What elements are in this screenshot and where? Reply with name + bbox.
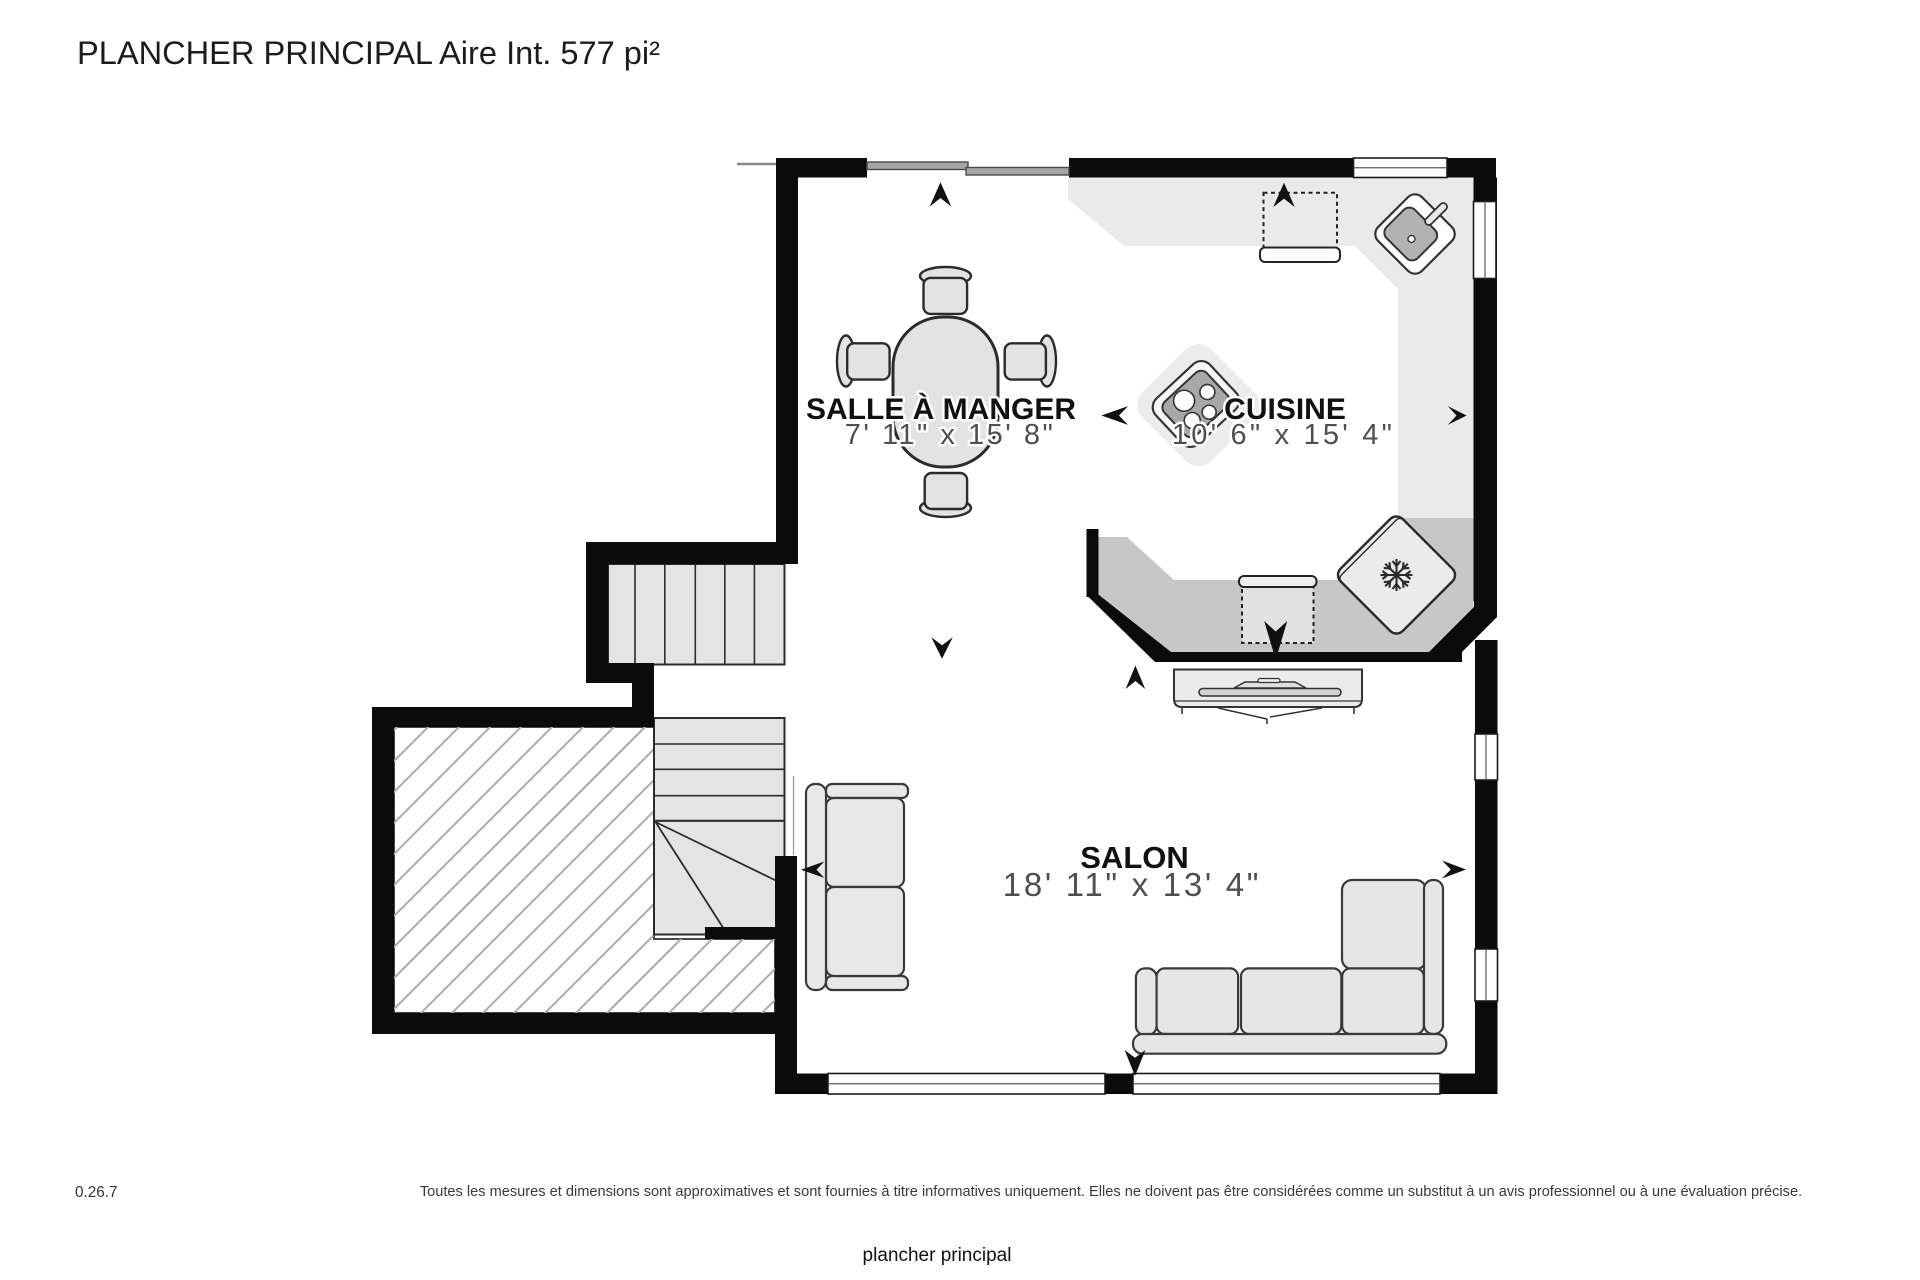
svg-text:10' 6" x 15' 4": 10' 6" x 15' 4" xyxy=(1172,419,1395,451)
svg-text:7' 11" x 15' 8": 7' 11" x 15' 8" xyxy=(845,419,1056,451)
svg-text:18' 11" x 13' 4": 18' 11" x 13' 4" xyxy=(1003,866,1261,903)
svg-text:0.26.7: 0.26.7 xyxy=(75,1184,118,1201)
svg-text:Toutes les mesures et dimensio: Toutes les mesures et dimensions sont ap… xyxy=(420,1184,1802,1200)
svg-text:PLANCHER PRINCIPAL Aire Int. 5: PLANCHER PRINCIPAL Aire Int. 577 pi² xyxy=(77,34,660,71)
svg-text:plancher principal: plancher principal xyxy=(863,1245,1012,1266)
